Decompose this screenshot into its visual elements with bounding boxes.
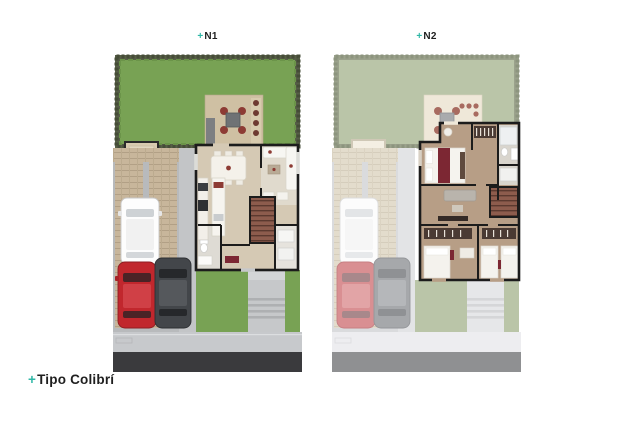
entry-bench: [225, 256, 239, 263]
shower: [500, 127, 517, 145]
pillow: [483, 248, 496, 255]
pillow: [503, 248, 516, 255]
nightstand: [450, 250, 454, 260]
sink: [214, 214, 224, 221]
plan-label-n1: +N1: [113, 31, 302, 42]
side-table: [452, 205, 463, 212]
sidewalk-faded: [332, 332, 521, 352]
project-type-title: +Tipo Colibrí: [28, 372, 114, 387]
house-ground-floor: [194, 143, 300, 271]
front-yard: [196, 270, 300, 332]
page-canvas: +N1 +N2: [0, 0, 640, 427]
side-table: [444, 128, 452, 136]
plan-name: N1: [204, 31, 217, 42]
white-suv-car-faded: [340, 198, 378, 264]
sofa: [444, 190, 476, 201]
plus-mark: +: [197, 31, 203, 42]
plan-label-n2: +N2: [332, 31, 521, 42]
plan-name: N2: [423, 31, 436, 42]
gray-car-faded: [374, 258, 410, 328]
front-yard-faded: [415, 280, 519, 332]
oven: [198, 183, 208, 191]
floorplan-n2-upper-floor: [332, 50, 521, 372]
red-car: [115, 262, 159, 328]
ottoman: [277, 192, 288, 200]
gray-car: [155, 258, 191, 328]
vanity-sink: [198, 256, 212, 265]
cooktop: [214, 182, 224, 188]
fridge: [198, 200, 208, 211]
toilet: [501, 148, 507, 156]
house-upper-floor: [418, 121, 519, 281]
bed-bench: [460, 152, 465, 179]
type-name: Tipo Colibrí: [37, 372, 114, 387]
desk: [460, 248, 474, 258]
stairs: [250, 197, 275, 243]
bed-runner: [438, 148, 450, 183]
road-faded: [332, 352, 521, 372]
road: [113, 352, 302, 372]
sink: [511, 148, 518, 160]
closet: [424, 228, 472, 239]
white-suv-car: [118, 198, 162, 264]
front-lawn-right: [285, 270, 300, 332]
plus-mark: +: [416, 31, 422, 42]
pillow: [426, 248, 448, 255]
tv-console: [438, 216, 468, 221]
terrace: [205, 95, 263, 147]
floorplan-n1-ground-floor: [113, 50, 302, 372]
plus-mark: +: [28, 372, 36, 387]
nightstand: [498, 260, 501, 269]
terrace-bench: [206, 118, 215, 144]
bathtub: [500, 168, 517, 181]
sidewalk: [113, 332, 302, 352]
hall-closet: [474, 126, 496, 138]
red-car-faded: [337, 262, 375, 328]
toilet: [201, 244, 208, 253]
stairs: [490, 187, 518, 217]
front-lawn-left: [196, 270, 248, 332]
